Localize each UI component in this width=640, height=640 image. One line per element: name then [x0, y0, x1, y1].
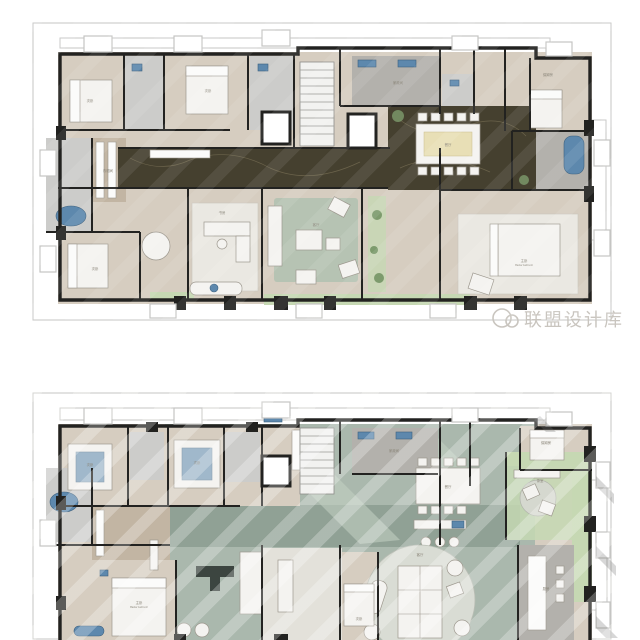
svg-text:主卧: 主卧 [521, 258, 528, 263]
upper-floor-plan: 次卧 次卧 家政间 保姆房 餐厅 书房 客厅 主卧 Master bedroom… [33, 23, 611, 320]
pantry-island [278, 560, 293, 612]
svg-text:Master bedroom: Master bedroom [130, 606, 148, 609]
svg-text:厨房: 厨房 [543, 586, 550, 591]
lower-floor-plan: 次卧 次卧 家政间 保姆房 餐厅 客厅 主卧 Master bedroom 厨房… [33, 393, 618, 640]
floor-plans-canvas: 次卧 次卧 家政间 保姆房 餐厅 书房 客厅 主卧 Master bedroom… [0, 0, 640, 640]
svg-text:保姆房: 保姆房 [543, 72, 554, 77]
svg-text:主卧: 主卧 [136, 600, 143, 605]
breakfast-table [142, 232, 170, 260]
kitchen-island [528, 556, 546, 630]
svg-text:保姆房: 保姆房 [541, 440, 552, 445]
svg-text:次卧: 次卧 [356, 616, 363, 621]
svg-text:Master bedroom: Master bedroom [515, 264, 533, 267]
master-bathtub [564, 136, 584, 174]
svg-text:次卧: 次卧 [92, 266, 99, 271]
svg-text:茶室: 茶室 [537, 478, 544, 483]
svg-text:次卧: 次卧 [194, 460, 201, 465]
master-bed [498, 224, 560, 276]
svg-text:书房: 书房 [219, 210, 226, 215]
svg-text:家政间: 家政间 [393, 80, 404, 85]
watermark-text: 联盟设计库 [524, 310, 624, 331]
svg-text:客厅: 客厅 [313, 222, 320, 227]
svg-text:家政间: 家政间 [389, 448, 400, 453]
svg-text:餐厅: 餐厅 [445, 484, 452, 489]
panda-logo-icon [493, 309, 518, 327]
svg-text:次卧: 次卧 [87, 462, 94, 467]
floor-plan-sheet: 次卧 次卧 家政间 保姆房 餐厅 书房 客厅 主卧 Master bedroom… [0, 0, 640, 640]
staircase [300, 62, 334, 146]
svg-text:衣帽间: 衣帽间 [103, 168, 114, 173]
svg-text:餐厅: 餐厅 [445, 142, 452, 147]
svg-text:客厅: 客厅 [417, 552, 424, 557]
svg-text:次卧: 次卧 [205, 88, 212, 93]
svg-text:次卧: 次卧 [87, 98, 94, 103]
